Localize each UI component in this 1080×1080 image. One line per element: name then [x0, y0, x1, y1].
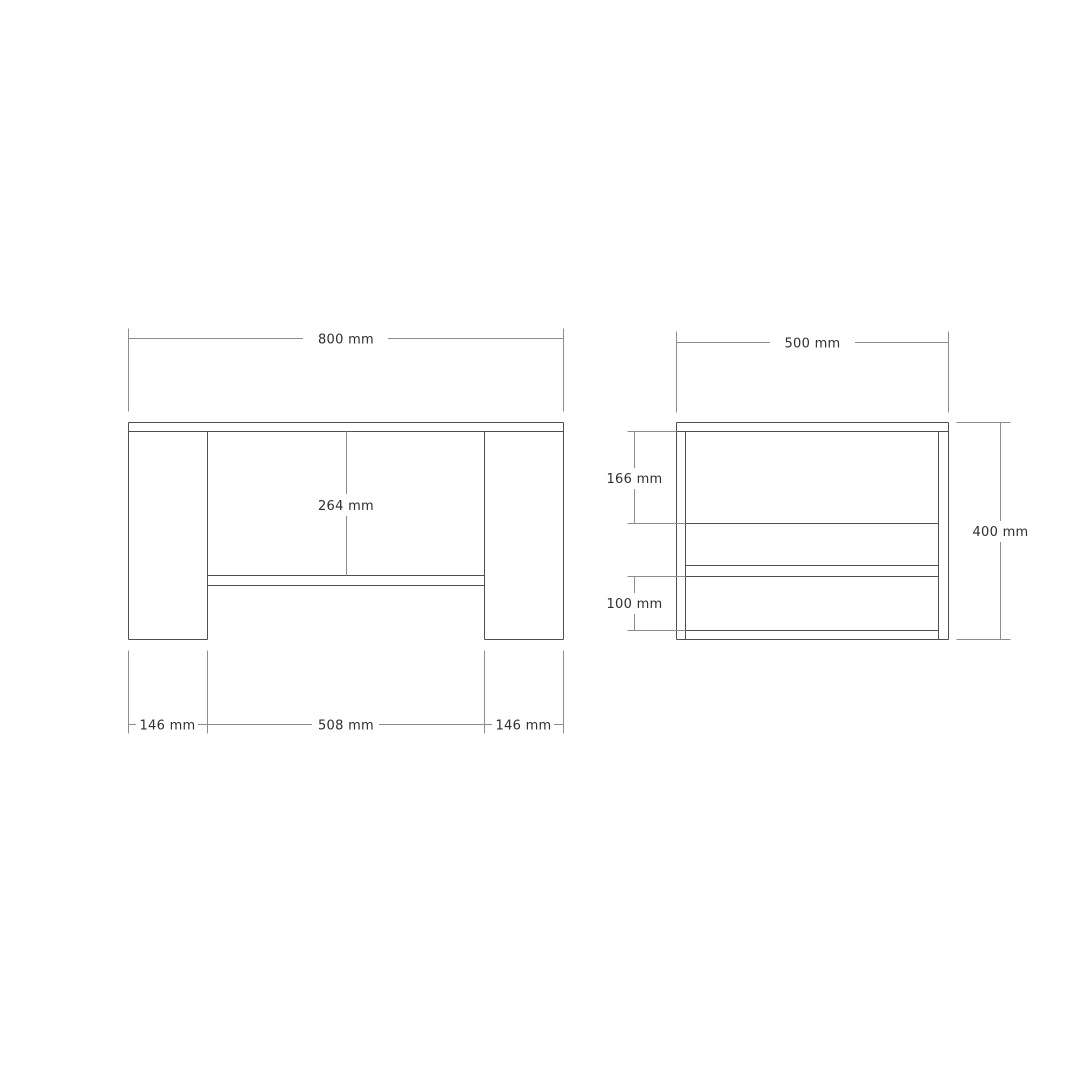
side-view: 500 mm 166 mm 100 mm 400 mm: [606, 332, 1028, 640]
front-interior-height-dimension: 264 mm: [318, 432, 374, 576]
dim-label-front-right-leg: 146 mm: [495, 719, 551, 734]
front-view: 800 mm 264 mm 146 mm 508 mm 146 mm: [129, 329, 564, 734]
dim-label-side-depth: 500 mm: [784, 337, 840, 352]
drawing-svg: 800 mm 264 mm 146 mm 508 mm 146 mm: [0, 0, 1080, 1080]
front-bottom-dimensions: 146 mm 508 mm 146 mm: [129, 651, 564, 734]
dim-label-side-upper-gap: 166 mm: [606, 472, 662, 487]
side-lower-gap-dimension: 100 mm: [606, 577, 685, 631]
side-depth-dimension: 500 mm: [677, 332, 949, 413]
side-height-dimension: 400 mm: [957, 423, 1029, 640]
front-width-dimension: 800 mm: [129, 329, 564, 412]
dim-label-front-opening: 508 mm: [318, 719, 374, 734]
dim-label-side-lower-gap: 100 mm: [606, 597, 662, 612]
dim-label-side-height: 400 mm: [972, 525, 1028, 540]
dim-label-front-width: 800 mm: [318, 333, 374, 348]
dim-label-front-left-leg: 146 mm: [139, 719, 195, 734]
technical-drawing-canvas: 800 mm 264 mm 146 mm 508 mm 146 mm: [0, 0, 1080, 1080]
dim-label-front-interior-height: 264 mm: [318, 499, 374, 514]
side-upper-gap-dimension: 166 mm: [606, 432, 685, 524]
side-object-lines: [677, 423, 949, 640]
